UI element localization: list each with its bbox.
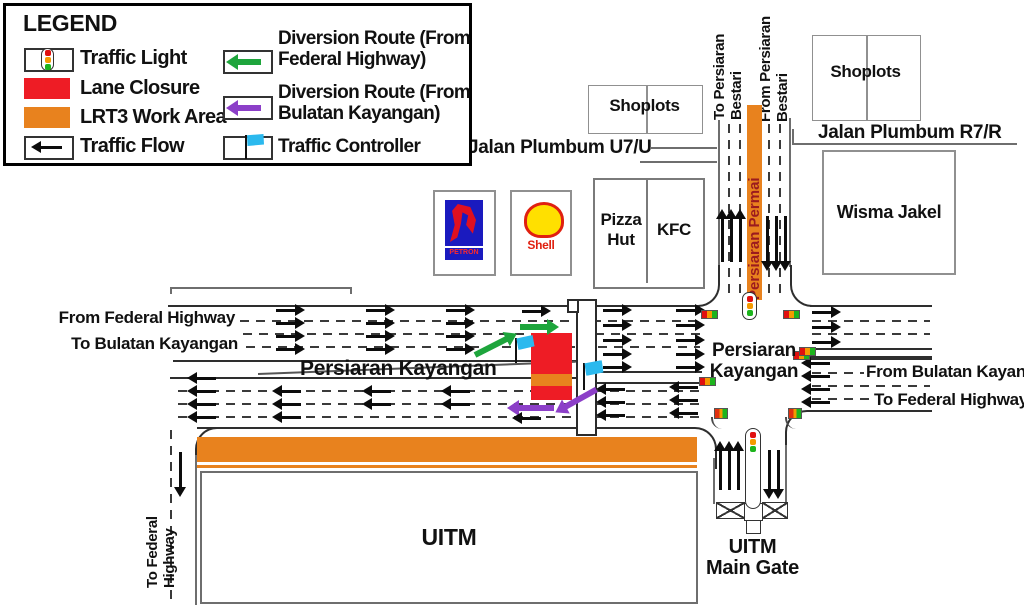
- traffic-flow-arrow-east: [603, 353, 623, 356]
- traffic-flow-arrow-west: [678, 399, 698, 402]
- traffic-flow-arrow-west: [371, 390, 391, 393]
- traffic-flow-arrow-east: [676, 366, 696, 369]
- legend-title: LEGEND: [23, 10, 117, 37]
- traffic-diversion-diagram: LEGEND Traffic Light Lane Closure LRT3 W…: [0, 0, 1024, 605]
- traffic-flow-legend-icon: [24, 136, 74, 160]
- u7u-road-stub: [640, 161, 717, 163]
- intersection-nw-corner: [678, 265, 720, 307]
- from-federal-highway-label: From Federal Highway: [58, 308, 235, 328]
- corner-traffic-light: [784, 408, 802, 429]
- lane-closure-area: [531, 333, 572, 400]
- traffic-flow-arrow-west: [281, 403, 301, 406]
- shell-logo: [524, 202, 564, 238]
- from-persiaran-bestari-label: From Persiaran Bestari: [757, 0, 791, 122]
- purple-diversion-legend-icon: [223, 96, 273, 120]
- shell-label: Shell: [512, 238, 570, 252]
- purple-diversion-arrow-straight: [518, 405, 554, 411]
- traffic-flow-arrow-east: [446, 348, 466, 351]
- green-diversion-legend-icon: [223, 50, 273, 74]
- wisma-jakel-label: Wisma Jakel: [837, 202, 942, 223]
- lane-closure-legend-icon: [24, 78, 70, 99]
- traffic-flow-arrow-north: [719, 450, 722, 490]
- pizza-hut-label: Pizza Hut: [595, 210, 647, 250]
- westbound-lane-line-east: [812, 385, 930, 387]
- uitm-main-gate-label: UITMMain Gate: [700, 537, 805, 579]
- gate-road-right-edge: [785, 445, 787, 504]
- traffic-flow-arrow-south: [766, 216, 769, 262]
- to-federal-highway-south-label: To Federal Highway: [144, 476, 182, 588]
- green-arrow-icon: [237, 59, 261, 65]
- cyan-flag-icon: [247, 134, 264, 146]
- traffic-flow-arrow-east: [366, 322, 386, 325]
- traffic-flow-arrow-south: [784, 216, 787, 262]
- traffic-flow-arrow-east: [276, 348, 296, 351]
- to-federal-highway-east-label: To Federal Highway: [872, 390, 1024, 410]
- traffic-flow-arrow-west: [450, 390, 470, 393]
- traffic-flow-arrow-west: [678, 386, 698, 389]
- traffic-flow-arrow-west: [810, 388, 830, 391]
- lrt3-crossing-work-area: [531, 374, 572, 386]
- legend-item-label: Traffic Flow: [80, 136, 184, 157]
- traffic-controller-legend-icon: [223, 136, 273, 160]
- eastbound-lane-line-east: [812, 333, 930, 335]
- traffic-flow-arrow-east: [276, 335, 296, 338]
- median-line-east-of-bridge: [593, 382, 702, 384]
- corner-traffic-light: [710, 408, 728, 429]
- gate-barrier-left: [716, 502, 745, 519]
- wisma-jakel-box: Wisma Jakel: [822, 150, 956, 275]
- purple-arrow-icon: [237, 105, 261, 111]
- traffic-flow-arrow-north: [721, 218, 724, 262]
- petron-label: PETRON: [445, 249, 483, 256]
- traffic-flow-arrow-east: [812, 326, 832, 329]
- traffic-light-legend-icon: [24, 48, 74, 72]
- petron-logo: PETRON: [445, 200, 483, 260]
- traffic-flow-arrow-east: [676, 339, 696, 342]
- south-road-inner-edge: [195, 455, 197, 605]
- traffic-flow-arrow-east: [366, 335, 386, 338]
- traffic-light-icon: [41, 48, 54, 71]
- uitm-box: UITM: [200, 471, 698, 604]
- gate-barrier-right: [762, 502, 788, 519]
- traffic-flow-arrow-east: [812, 311, 832, 314]
- jalan-plumbum-r7r-label: Jalan Plumbum R7/R: [818, 122, 1002, 144]
- petron-p-icon: [450, 204, 476, 242]
- intersection-ne-corner: [790, 265, 832, 307]
- r7r-road-stub: [792, 129, 794, 143]
- traffic-flow-arrow-east: [366, 348, 386, 351]
- uitm-lrt3-work-area-strip: [197, 465, 697, 468]
- legend-panel: LEGEND Traffic Light Lane Closure LRT3 W…: [3, 3, 472, 166]
- traffic-flow-arrow-west: [678, 412, 698, 415]
- shell-station-box: Shell: [510, 190, 572, 276]
- traffic-flow-arrow-west: [196, 416, 216, 419]
- traffic-flow-arrow-north: [728, 450, 731, 490]
- traffic-flow-arrow-east: [676, 309, 696, 312]
- to-bulatan-kayangan-label: To Bulatan Kayangan: [58, 334, 238, 354]
- petron-station-box: PETRON: [433, 190, 496, 276]
- flag-pole-icon: [515, 338, 517, 363]
- to-persiaran-bestari-label: To Persiaran Bestari: [711, 2, 745, 120]
- traffic-flow-arrow-east: [276, 322, 296, 325]
- jalan-plumbum-u7u-label: Jalan Plumbum U7/U: [468, 137, 648, 159]
- traffic-flow-arrow-east: [603, 324, 623, 327]
- traffic-flow-arrow-north: [730, 218, 733, 262]
- r7r-road-line: [792, 143, 1017, 145]
- shoplots-left-label: Shoplots: [588, 96, 701, 116]
- traffic-flow-arrow-east: [522, 310, 542, 313]
- sidewalk-tick: [170, 287, 172, 294]
- traffic-flow-arrow-south: [768, 450, 771, 490]
- traffic-flow-arrow-east: [446, 309, 466, 312]
- flag-pole-icon: [245, 135, 247, 159]
- traffic-flow-arrow-west: [810, 375, 830, 378]
- traffic-flow-arrow-west: [450, 403, 470, 406]
- flag-pole-icon: [583, 363, 585, 390]
- traffic-flow-arrow-east: [676, 353, 696, 356]
- uitm-lrt3-work-area: [197, 437, 697, 462]
- median-traffic-light: [742, 292, 757, 320]
- from-bulatan-kayangan-label: From Bulatan Kayangan: [864, 362, 1024, 382]
- work-area-legend-icon: [24, 107, 70, 128]
- traffic-flow-arrow-north: [737, 450, 740, 490]
- shoplots-right-label: Shoplots: [812, 62, 919, 82]
- traffic-flow-arrow-west: [605, 401, 625, 404]
- traffic-light: [783, 310, 800, 319]
- traffic-flow-arrow-west: [810, 401, 830, 404]
- persiaran-kayangan-east-label: PersiaranKayangan: [706, 340, 802, 382]
- persiaran-kayangan-label: Persiaran Kayangan: [300, 357, 480, 381]
- westbound-bottom-edge: [197, 427, 693, 429]
- bridge-stair-structure: [567, 299, 579, 313]
- kfc-label: KFC: [648, 220, 700, 240]
- permai-right-edge: [789, 118, 791, 267]
- permai-lane-line: [768, 124, 770, 298]
- green-diversion-arrow-straight: [520, 324, 548, 330]
- sidewalk-tick: [350, 287, 352, 294]
- permai-left-edge: [718, 120, 720, 267]
- persiaran-permai-label: Persiaran Permai: [746, 128, 763, 300]
- petron-divider: [445, 246, 483, 248]
- westbound-top-edge-east: [800, 358, 932, 360]
- traffic-flow-arrow-east: [366, 309, 386, 312]
- traffic-flow-arrow-east: [276, 309, 296, 312]
- legend-item-label: LRT3 Work Area: [80, 107, 226, 128]
- legend-item-label: Traffic Controller: [278, 136, 474, 157]
- traffic-flow-arrow-west: [196, 377, 216, 380]
- traffic-flow-arrow-east: [446, 322, 466, 325]
- traffic-flow-arrow-east: [603, 339, 623, 342]
- traffic-flow-arrow-west: [196, 390, 216, 393]
- gate-median-traffic-light: [745, 428, 761, 509]
- traffic-light: [701, 310, 718, 319]
- traffic-flow-arrow-east: [676, 324, 696, 327]
- legend-item-label: Traffic Light: [80, 48, 187, 69]
- sidewalk-line: [170, 287, 352, 289]
- traffic-flow-arrow-west: [371, 403, 391, 406]
- legend-item-label: Diversion Route (From Bulatan Kayangan): [278, 82, 474, 124]
- traffic-flow-arrow-east: [603, 366, 623, 369]
- traffic-flow-arrow-north: [739, 218, 742, 262]
- gate-road-left-edge: [713, 458, 715, 504]
- traffic-flow-arrow-west: [521, 417, 541, 420]
- traffic-flow-arrow-west: [281, 390, 301, 393]
- traffic-flow-arrow-south: [777, 450, 780, 490]
- traffic-flow-arrow-west: [281, 416, 301, 419]
- traffic-flow-arrow-west: [605, 414, 625, 417]
- traffic-flow-arrow-west: [605, 388, 625, 391]
- traffic-flow-arrow-east: [603, 309, 623, 312]
- traffic-flow-arrow-west: [810, 362, 830, 365]
- traffic-flow-arrow-east: [812, 341, 832, 344]
- traffic-flow-arrow-east: [446, 335, 466, 338]
- median-line-east-of-bridge: [593, 371, 702, 373]
- legend-item-label: Diversion Route (From Federal Highway): [278, 28, 474, 70]
- eastbound-top-edge: [168, 305, 700, 307]
- eastbound-lane-line-east: [812, 320, 930, 322]
- legend-item-label: Lane Closure: [80, 78, 200, 99]
- east-median-line: [810, 348, 932, 350]
- black-arrow-icon: [40, 146, 62, 149]
- permai-lane-line: [779, 124, 781, 298]
- gate-booth-base: [746, 520, 761, 534]
- traffic-flow-arrow-west: [196, 403, 216, 406]
- traffic-flow-arrow-south: [775, 216, 778, 262]
- uitm-label: UITM: [421, 524, 476, 551]
- u7u-connector-line: [650, 147, 717, 149]
